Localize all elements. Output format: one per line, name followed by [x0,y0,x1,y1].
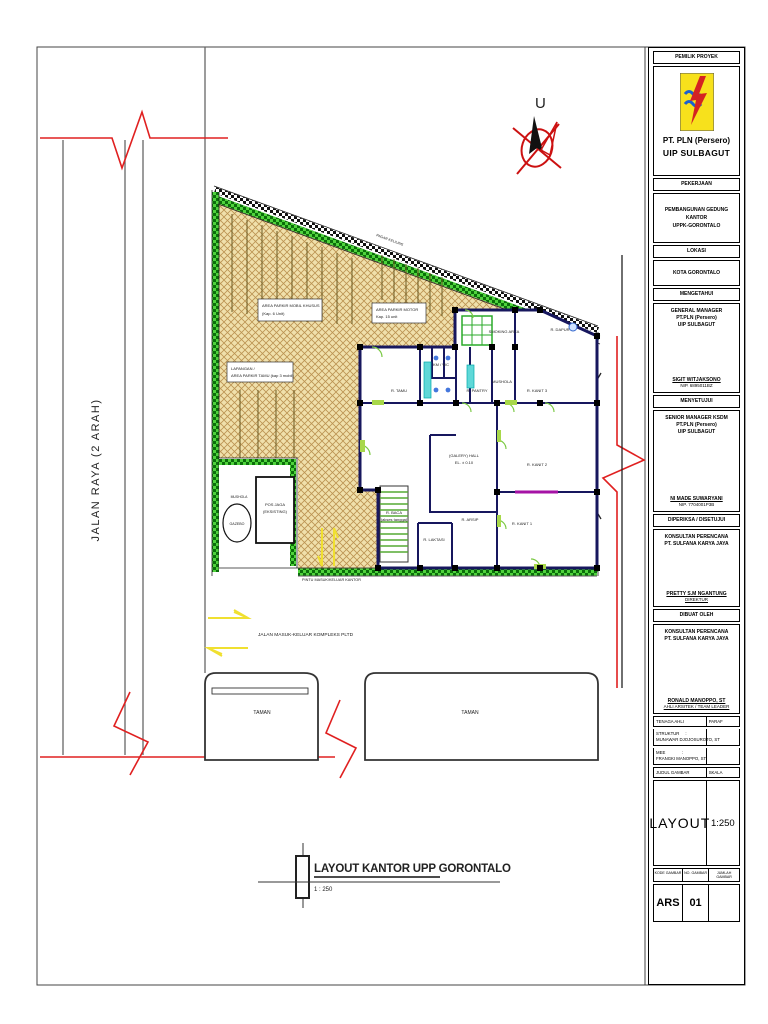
drawing-title-text: LAYOUT KANTOR UPP GORONTALO [314,863,511,875]
made-role: AHLI ARSITEK / TEAM LEADER [656,704,737,709]
room-label: SMOKING AREA [489,329,520,334]
made-line1: KONSULTAN PERENCANA [656,629,737,636]
mee-label: MEE : [656,750,683,755]
jalan-masuk-label: JALAN MASUK-KELUAR KOMPLEKS PLTD [258,632,354,638]
jumlah-gambar-label: JUMLAH GAMBAR [709,869,739,881]
title-block: PEMILIK PROYEK PT. PLN (Persero) UIP SUL… [648,47,745,985]
skala-value: 1:250 [707,781,739,865]
tb-mee-row: MEE :FRANGKI MANOPPO, ST [653,748,740,765]
taman-blocks [205,673,598,760]
made-line2: PT. SULFANA KARYA JAYA [656,636,737,643]
pintu-masuk-label: PINTU MASUK/KELUAR KANTOR [302,578,361,582]
tb-tenaga-header-row: TENAGA AHLI PARAF [653,716,740,727]
agree-nip: NIP. 7704001P3B [656,502,737,507]
check-role: DIREKTUR [656,597,737,602]
tb-dibuat-header: DIBUAT OLEH [653,609,740,622]
kode-value: ARS [654,885,683,921]
room-label: R. KANIT 3 [527,388,548,393]
tb-kode-value-row: ARS 01 [653,884,740,922]
room-label: R. ARSIP [462,517,479,522]
tb-struktur-row: STRUKTUR :MUNAWAR DJOJOSUROTO, ST [653,729,740,746]
drawing-title: LAYOUT KANTOR UPP GORONTALO 1 : 250 [258,843,511,908]
agree-line1: SENIOR MANAGER KSDM [656,415,737,422]
tb-kode-header-row: KODE GAMBAR NO. GAMBAR JUMLAH GAMBAR [653,868,740,882]
tb-pekerjaan-header: PEKERJAAN [653,178,740,191]
tb-dibuat-box: KONSULTAN PERENCANA PT. SULFANA KARYA JA… [653,624,740,714]
tb-diperiksa-box: KONSULTAN PERENCANA PT. SULFANA KARYA JA… [653,529,740,607]
kode-gambar-label: KODE GAMBAR [654,869,683,881]
tb-lokasi-header: LOKASI [653,245,740,258]
room-label: KM / WC [433,362,449,367]
lapangan-label: LAPANGAN / [231,366,256,371]
drawing-scale-text: 1 : 250 [314,887,333,893]
mee-cell: MEE :FRANGKI MANOPPO, ST [654,748,707,764]
agree-line2: PT.PLN (Persero) [656,422,737,429]
judul-value: LAYOUT [654,781,707,865]
room-label: R. PANTRY [467,388,488,393]
company-name: PT. PLN (Persero) [663,136,730,145]
tb-pemilik-header: PEMILIK PROYEK [653,51,740,64]
tenaga-ahli-label: TENAGA AHLI [654,717,707,726]
pos-jaga-label: POS JAGA [265,502,285,507]
pagar-note: PAGAR KELILING [376,233,405,247]
know-line1: GENERAL MANAGER [656,308,737,315]
pos-jaga-zone: GAZEBO MUSHOLA POS JAGA (EKSISTING) [219,458,298,570]
mee-name: FRANGKI MANOPPO, ST [656,756,706,761]
no-value: 01 [683,885,709,921]
room-label: R. KANIT 1 [512,521,533,526]
room-label: (GALERY) HALL [449,453,480,458]
tb-pekerjaan-box: PEMBANGUNAN GEDUNG KANTOR UPPK-GORONTALO [653,193,740,243]
check-line1: KONSULTAN PERENCANA [656,534,737,541]
tb-judul-value-row: LAYOUT 1:250 [653,780,740,866]
room-label: R. DAPUR [550,327,569,332]
job-line2: UPPK-GORONTALO [654,222,739,230]
tb-menyetujui-header: MENYETUJUI [653,395,740,408]
lapangan-cap: AREA PARKIR TAMU (kap 3 mobil) [231,373,294,378]
smoking-area-window [462,316,492,345]
tb-judul-header-row: JUDUL GAMBAR SKALA [653,767,740,778]
tb-menyetujui-box: SENIOR MANAGER KSDM PT.PLN (Persero) UIP… [653,410,740,512]
know-line2: PT.PLN (Persero) [656,315,737,322]
taman-right-label: TAMAN [461,710,479,716]
building: SMOKING AREA R. DAPUR R. TAMU KM / WC R.… [357,307,600,571]
struktur-cell: STRUKTUR :MUNAWAR DJOJOSUROTO, ST [654,729,707,745]
tb-mengetahui-box: GENERAL MANAGER PT.PLN (Persero) UIP SUL… [653,303,740,393]
job-line1: PEMBANGUNAN GEDUNG KANTOR [654,206,739,222]
room-label: R. KANIT 2 [527,462,548,467]
parkir-motor-cap: Kap. 15 unit [376,314,398,319]
taman-left-label: TAMAN [253,710,271,716]
room-label: EL. ± 0.10 [455,460,474,465]
parkir-mobil-label: AREA PARKIR MOBIL KHUSUS [262,303,320,308]
north-letter: U [535,95,546,112]
no-gambar-label: NO. GAMBAR [683,869,709,881]
mushola-label: MUSHOLA [231,495,249,499]
room-label: R. TAMU [391,388,407,393]
pos-jaga-sub: (EKSISTING) [263,509,288,514]
parkir-mobil-cap: (Kap. 6 Unit) [262,311,285,316]
compass: U [513,95,561,174]
struktur-label: STRUKTUR : [656,731,687,736]
agree-line3: UIP SULBAGUT [656,429,737,436]
struktur-paraf-cell [707,729,739,745]
pln-logo-icon [680,73,714,131]
mee-paraf-cell [707,748,739,764]
tb-mengetahui-header: MENGETAHUI [653,288,740,301]
company-unit: UIP SULBAGUT [663,148,730,158]
road-label: JALAN RAYA (2 ARAH) [90,398,102,541]
gazebo-label: GAZEBO [230,522,245,526]
compass-rose-icon [513,116,561,174]
road-jalan-raya [63,47,205,755]
tb-diperiksa-header: DIPERIKSA / DISETUJUI [653,514,740,527]
lokasi-value: KOTA GORONTALO [673,270,720,276]
room-label: (akses tangga) [381,517,408,522]
know-line3: UIP SULBAGUT [656,322,737,329]
tb-company-box: PT. PLN (Persero) UIP SULBAGUT [653,66,740,176]
check-line2: PT. SULFANA KARYA JAYA [656,541,737,548]
parkir-motor-label: AREA PARKIR MOTOR [376,307,418,312]
room-label: R. BACA [386,510,402,515]
section-marker [296,856,309,898]
know-nip: NIP. 6895011BZ [656,383,737,388]
skala-label: SKALA [707,768,739,777]
room-label: R. LAKTASI [423,537,444,542]
judul-gambar-label: JUDUL GAMBAR [654,768,707,777]
stairs [380,486,408,562]
room-label: MUSHOLA [492,379,512,384]
tb-lokasi-box: KOTA GORONTALO [653,260,740,286]
jumlah-value [709,885,739,921]
paraf-label: PARAF [707,717,739,726]
